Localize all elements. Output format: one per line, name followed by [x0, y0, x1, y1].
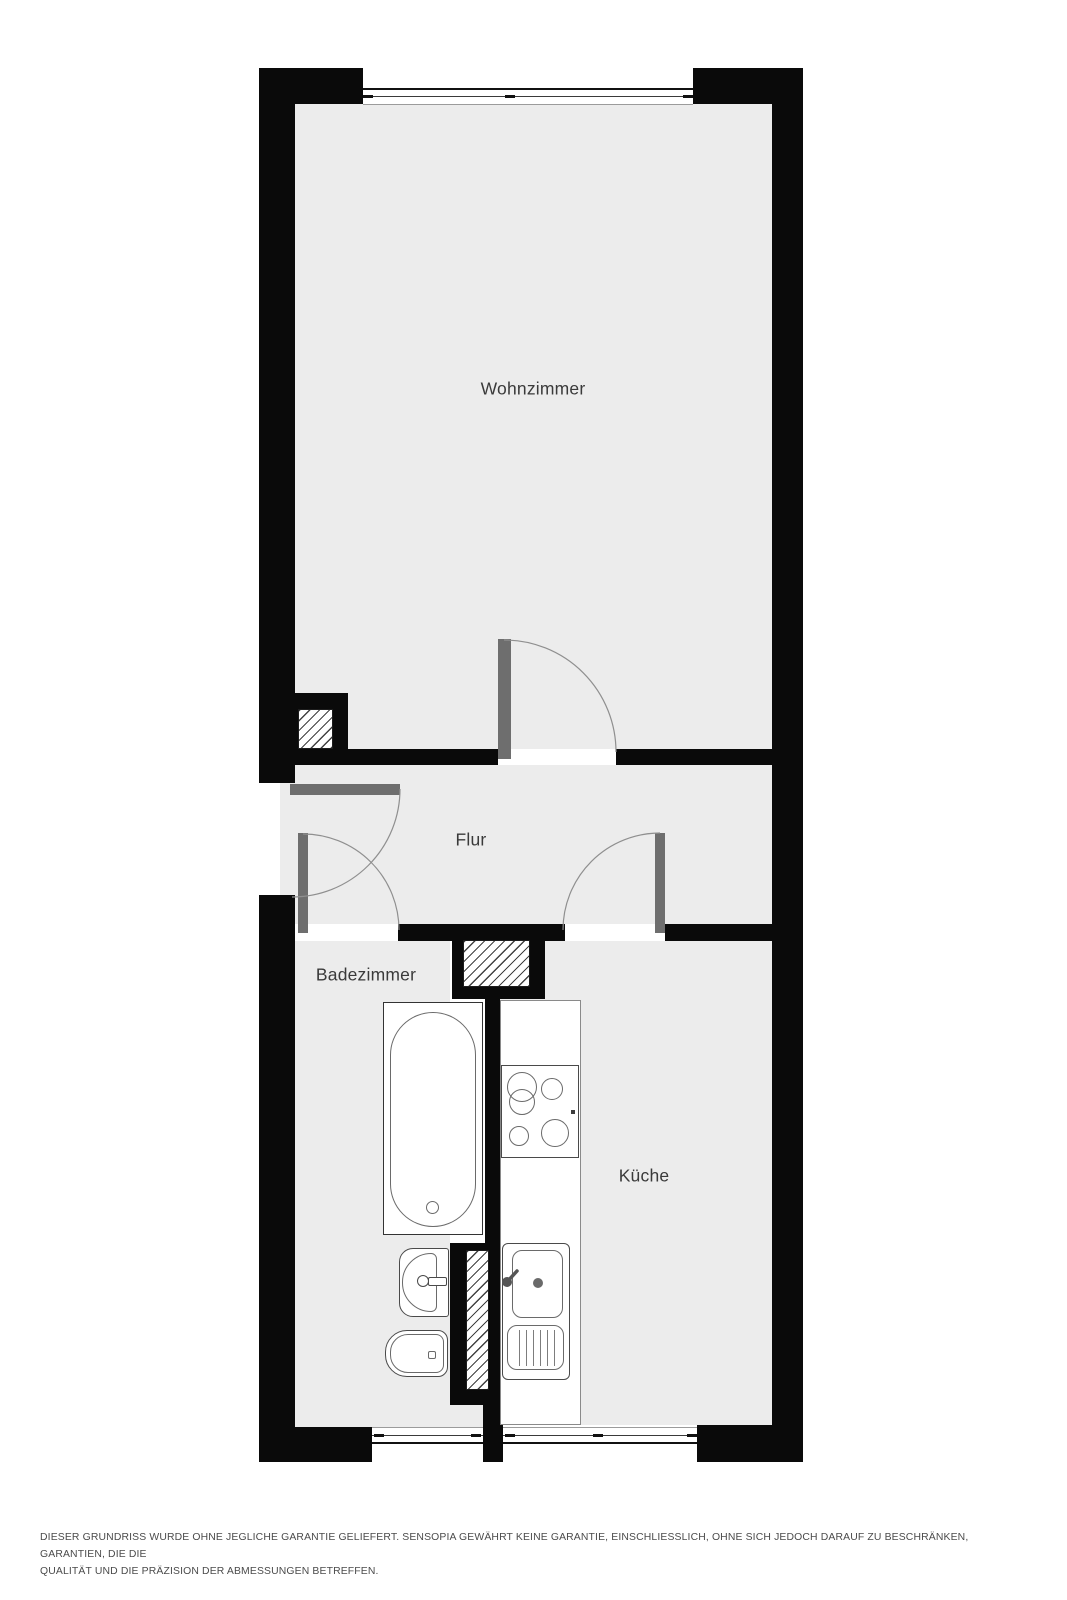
bathtub-drain: [426, 1201, 439, 1214]
duct-hatch-chimney: [463, 940, 530, 987]
disclaimer-line-2: QUALITÄT UND DIE PRÄZISION DER ABMESSUNG…: [40, 1563, 1030, 1580]
washbasin-faucet: [428, 1277, 447, 1286]
washbasin-faucet-knob: [417, 1275, 429, 1287]
duct-hatch-wohnzimmer: [298, 709, 333, 749]
window-bottom-left: [372, 1427, 483, 1444]
kitchen-sink-drainboard-ridges: [519, 1330, 556, 1366]
wall-wohnzimmer-south-right: [616, 749, 772, 765]
floor-wohnzimmer: [295, 104, 772, 749]
bathtub-basin: [390, 1012, 476, 1227]
wall-bottom-corner-left: [259, 1427, 372, 1462]
wall-top-corner-right: [693, 68, 803, 104]
wall-flur-south-a: [398, 924, 452, 941]
room-label-wohnzimmer: Wohnzimmer: [481, 379, 586, 400]
wall-bath-kitchen-upper: [485, 999, 500, 1249]
floor-plan: Wohnzimmer Flur Badezimmer Küche DIESER …: [0, 0, 1067, 1600]
disclaimer: DIESER GRUNDRISS WURDE OHNE JEGLICHE GAR…: [40, 1529, 1030, 1580]
room-label-badezimmer: Badezimmer: [316, 965, 416, 986]
wall-flur-south-b: [545, 924, 565, 941]
room-label-flur: Flur: [456, 830, 487, 851]
stove-burner-bl: [509, 1126, 529, 1146]
room-label-kueche: Küche: [619, 1166, 670, 1187]
wall-left-lower: [259, 895, 295, 1462]
kitchen-sink-drain: [533, 1278, 543, 1288]
wall-left-upper: [259, 68, 295, 783]
window-bottom-right: [503, 1427, 697, 1444]
floor-flur-entry-recess: [280, 783, 295, 895]
door-leaf-wohnzimmer: [498, 639, 511, 759]
duct-hatch-shaft: [466, 1250, 489, 1390]
floor-badezimmer-s: [450, 1405, 483, 1427]
door-leaf-kueche: [655, 833, 665, 933]
wall-right: [772, 104, 803, 1425]
wall-bottom-corner-right: [697, 1425, 803, 1462]
door-leaf-entry: [290, 784, 400, 795]
window-top: [363, 88, 693, 105]
stove-burner-tl-b: [509, 1089, 535, 1115]
stove-burner-br: [541, 1119, 569, 1147]
kitchen-sink-faucet-base: [502, 1277, 512, 1287]
stove-knob-dot: [571, 1110, 575, 1114]
disclaimer-line-1: DIESER GRUNDRISS WURDE OHNE JEGLICHE GAR…: [40, 1529, 1030, 1563]
door-leaf-badezimmer: [298, 833, 308, 933]
wall-flur-south-c: [665, 924, 772, 941]
bidet-button: [428, 1351, 436, 1359]
stove-burner-tr: [541, 1078, 563, 1100]
